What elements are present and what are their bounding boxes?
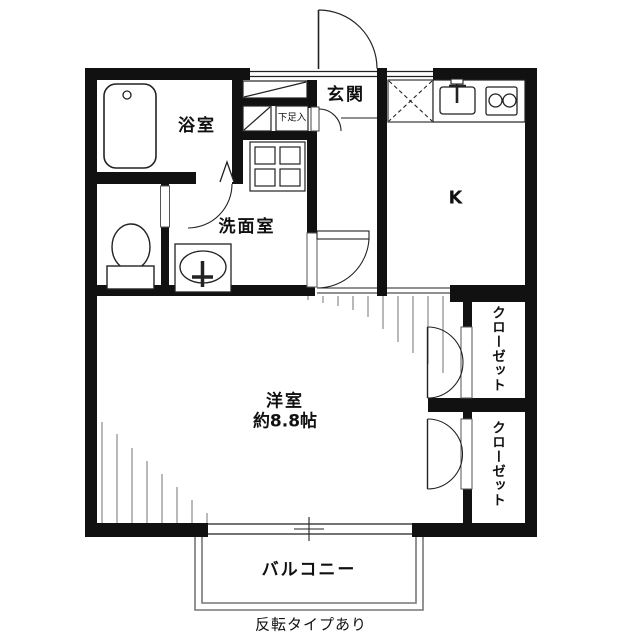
washstand-icon xyxy=(175,244,231,292)
kitchen-label: K xyxy=(449,189,464,210)
bathtub-icon xyxy=(104,84,156,168)
shoe-cabinet-door xyxy=(311,107,377,131)
toilet-door xyxy=(161,186,170,227)
main-room-name: 洋室 xyxy=(253,392,317,412)
closet-upper-label: クローゼット xyxy=(487,306,507,393)
main-room-label: 洋室 約8.8帖 xyxy=(253,392,317,431)
main-room-size: 約8.8帖 xyxy=(253,412,317,432)
closet-lower-doors xyxy=(428,419,473,489)
toilet-icon xyxy=(107,224,154,289)
closet-lower-label: クローゼット xyxy=(487,421,507,508)
washing-machine-pan xyxy=(250,142,305,191)
washroom-door xyxy=(307,231,369,288)
ceiling-hatch-bottom xyxy=(102,422,207,523)
closet-upper-doors xyxy=(428,327,473,398)
refrigerator-space xyxy=(388,80,433,122)
kitchen-counter xyxy=(433,79,525,122)
washroom-label: 洗面室 xyxy=(219,218,276,238)
balcony-label: バルコニー xyxy=(262,561,357,581)
balcony-sliding-door xyxy=(208,517,412,541)
floor-plan: 浴室 玄関 下足入 洗面室 K 洋室 約8.8帖 クローゼット クローゼット バ… xyxy=(0,0,640,640)
shoe-cabinet-label: 下足入 xyxy=(278,114,307,125)
floor-plan-drawing xyxy=(0,0,640,640)
variant-note: 反転タイプあり xyxy=(255,616,367,633)
stove-icon xyxy=(486,87,517,115)
entrance-label: 玄関 xyxy=(327,86,365,106)
entrance-door xyxy=(319,10,378,69)
ceiling-hatch-top xyxy=(308,296,443,373)
bath-label: 浴室 xyxy=(178,117,216,137)
